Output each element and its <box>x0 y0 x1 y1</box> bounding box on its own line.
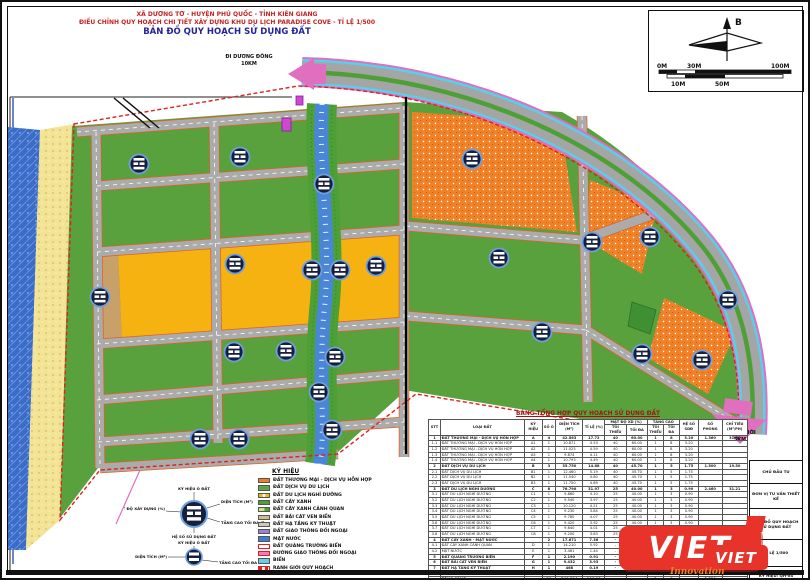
plot-info-stamp <box>326 348 345 367</box>
plot-info-stamp <box>91 288 110 307</box>
legend-swatch <box>258 544 270 549</box>
legend-label: ĐẤT GIAO THÔNG ĐỐI NGOẠI <box>273 529 348 534</box>
legend-label: ĐẤT CÂY XANH <box>273 500 311 505</box>
utility-box-2 <box>296 96 303 105</box>
plot-info-stamp <box>693 351 712 370</box>
legend-item: ĐẤT DU LỊCH NGHỈ DƯỠNG <box>258 492 416 499</box>
legend-item: ĐẤT BÃI CÁT VEN BIỂN <box>258 513 416 520</box>
legend-swatch <box>258 551 270 556</box>
legend-item: ĐẤT QUẢNG TRƯỜNG BIỂN <box>258 543 416 550</box>
plot-info-stamp <box>277 342 296 361</box>
compass-scale-box: B 0M 30M 100M 10M 50M <box>648 10 804 92</box>
label-to-duong-dong: ĐI DƯƠNG ĐÔNG10KM <box>210 54 288 67</box>
plot-info-stamp <box>191 430 210 449</box>
stamp-legend-diagram: KÝ HIỆU Ô ĐẤT MẬT ĐỘ XÂY DỰNG (%) DIỆN T… <box>124 482 264 574</box>
table-title: BẢNG TỔNG HỢP QUY HOẠCH SỬ DỤNG ĐẤT <box>428 411 748 417</box>
legend-swatch <box>258 558 270 563</box>
legend-item: ĐẤT CÂY XANH <box>258 499 416 506</box>
legend-label: ĐẤT DỊCH VỤ DU LỊCH <box>273 485 329 490</box>
svg-text:100M: 100M <box>771 63 790 70</box>
legend-swatch <box>258 500 270 505</box>
legend-item: ĐẤT GIAO THÔNG ĐỐI NGOẠI <box>258 528 416 535</box>
plan-drawing-page: XÃ DƯƠNG TƠ - HUYỆN PHÚ QUỐC - TỈNH KIÊN… <box>0 0 810 580</box>
utility-box-1 <box>282 118 291 131</box>
legend-item: ĐẤT DỊCH VỤ DU LỊCH <box>258 484 416 491</box>
project-title: ĐIỀU CHỈNH QUY HOẠCH CHI TIẾT XÂY DỰNG K… <box>42 19 412 27</box>
plot-info-stamp <box>230 430 249 449</box>
plot-info-stamp <box>331 261 350 280</box>
drawing-header: XÃ DƯƠNG TƠ - HUYỆN PHÚ QUỐC - TỈNH KIÊN… <box>42 11 412 38</box>
plot-info-stamp <box>310 383 329 402</box>
legend-label: ĐƯỜNG GIAO THÔNG ĐỐI NGOẠI <box>273 551 356 556</box>
plot-info-stamp <box>303 261 322 280</box>
legend-label: ĐẤT BÃI CÁT VEN BIỂN <box>273 515 331 520</box>
legend-label: ĐẤT HẠ TẦNG KỸ THUẬT <box>273 522 336 527</box>
svg-text:10M: 10M <box>671 81 685 88</box>
legend-title: KÝ HIỆU <box>272 468 416 475</box>
svg-text:MẬT ĐỘ XÂY DỰNG (%): MẬT ĐỘ XÂY DỰNG (%) <box>124 506 165 511</box>
legend-swatch <box>258 536 270 541</box>
svg-text:30M: 30M <box>687 63 701 70</box>
svg-text:KÝ HIỆU Ô ĐẤT: KÝ HIỆU Ô ĐẤT <box>178 486 210 491</box>
scale-bar: 0M 30M 100M 10M 50M <box>657 63 791 88</box>
plot-info-stamp <box>463 150 482 169</box>
legend-item: ĐƯỜNG GIAO THÔNG ĐỐI NGOẠI <box>258 550 416 557</box>
legend-item: ĐẤT THƯƠNG MẠI - DỊCH VỤ HỖN HỢP <box>258 477 416 484</box>
plot-info-stamp <box>583 233 602 252</box>
stamp-sample-small <box>186 549 202 565</box>
plot-info-stamp <box>367 257 386 276</box>
svg-text:DIỆN TÍCH (M²): DIỆN TÍCH (M²) <box>221 499 253 504</box>
viet-watermark-tagline: Innovation <box>670 567 800 577</box>
legend-label: ĐẤT CÂY XANH CẢNH QUAN <box>273 507 344 512</box>
location-title: XÃ DƯƠNG TƠ - HUYỆN PHÚ QUỐC - TỈNH KIÊN… <box>42 11 412 19</box>
svg-text:TẦNG CAO TỐI ĐA: TẦNG CAO TỐI ĐA <box>219 560 257 565</box>
legend-item: ĐẤT CÂY XANH CẢNH QUAN <box>258 506 416 513</box>
stamp-sample-big <box>181 501 207 527</box>
legend-label: ĐẤT QUẢNG TRƯỜNG BIỂN <box>273 544 341 549</box>
legend-swatch <box>258 478 270 483</box>
plot-info-stamp <box>633 345 652 364</box>
legend: KÝ HIỆU ĐẤT THƯƠNG MẠI - DỊCH VỤ HỖN HỢP… <box>258 468 416 572</box>
canal <box>310 104 337 464</box>
legend-swatch <box>258 507 270 512</box>
legend-swatch <box>258 529 270 534</box>
svg-text:KÝ HIỆU Ô ĐẤT: KÝ HIỆU Ô ĐẤT <box>178 540 210 545</box>
plot-info-stamp <box>231 148 250 167</box>
plot-info-stamp <box>225 343 244 362</box>
title-block-cell: CHỦ ĐẦU TƯ <box>749 460 803 483</box>
plot-info-stamp <box>315 175 334 194</box>
legend-swatch <box>258 515 270 520</box>
svg-text:50M: 50M <box>715 81 729 88</box>
svg-text:0M: 0M <box>657 63 667 70</box>
plot-info-stamp <box>641 228 660 247</box>
north-label: B <box>735 18 742 28</box>
legend-swatch <box>258 522 270 527</box>
plot-info-stamp <box>130 155 149 174</box>
svg-text:HỆ SỐ SỬ DỤNG ĐẤT: HỆ SỐ SỬ DỤNG ĐẤT <box>172 534 217 539</box>
svg-text:DIỆN TÍCH (M²): DIỆN TÍCH (M²) <box>135 554 167 559</box>
plot-info-stamp <box>719 291 738 310</box>
plot-info-stamp <box>323 421 342 440</box>
plot-info-stamp <box>226 255 245 274</box>
legend-item: MẶT NƯỚC <box>258 535 416 542</box>
legend-swatch <box>258 485 270 490</box>
legend-item: BIỂN <box>258 557 416 564</box>
plot-info-stamp <box>533 323 552 342</box>
drawing-title: BẢN ĐỒ QUY HOẠCH SỬ DỤNG ĐẤT <box>42 27 412 38</box>
plot-info-stamp <box>490 249 509 268</box>
title-block-cell: ĐƠN VỊ TƯ VẤN THIẾT KẾ <box>749 483 803 508</box>
legend-label: MẶT NƯỚC <box>273 537 301 542</box>
legend-swatch <box>258 493 270 498</box>
legend-label: ĐẤT DU LỊCH NGHỈ DƯỠNG <box>273 493 342 498</box>
legend-label: BIỂN <box>273 558 285 563</box>
compass-rose-icon: B <box>689 17 761 61</box>
legend-label: ĐẤT THƯƠNG MẠI - DỊCH VỤ HỖN HỢP <box>273 478 372 483</box>
legend-item: ĐẤT HẠ TẦNG KỸ THUẬT <box>258 521 416 528</box>
